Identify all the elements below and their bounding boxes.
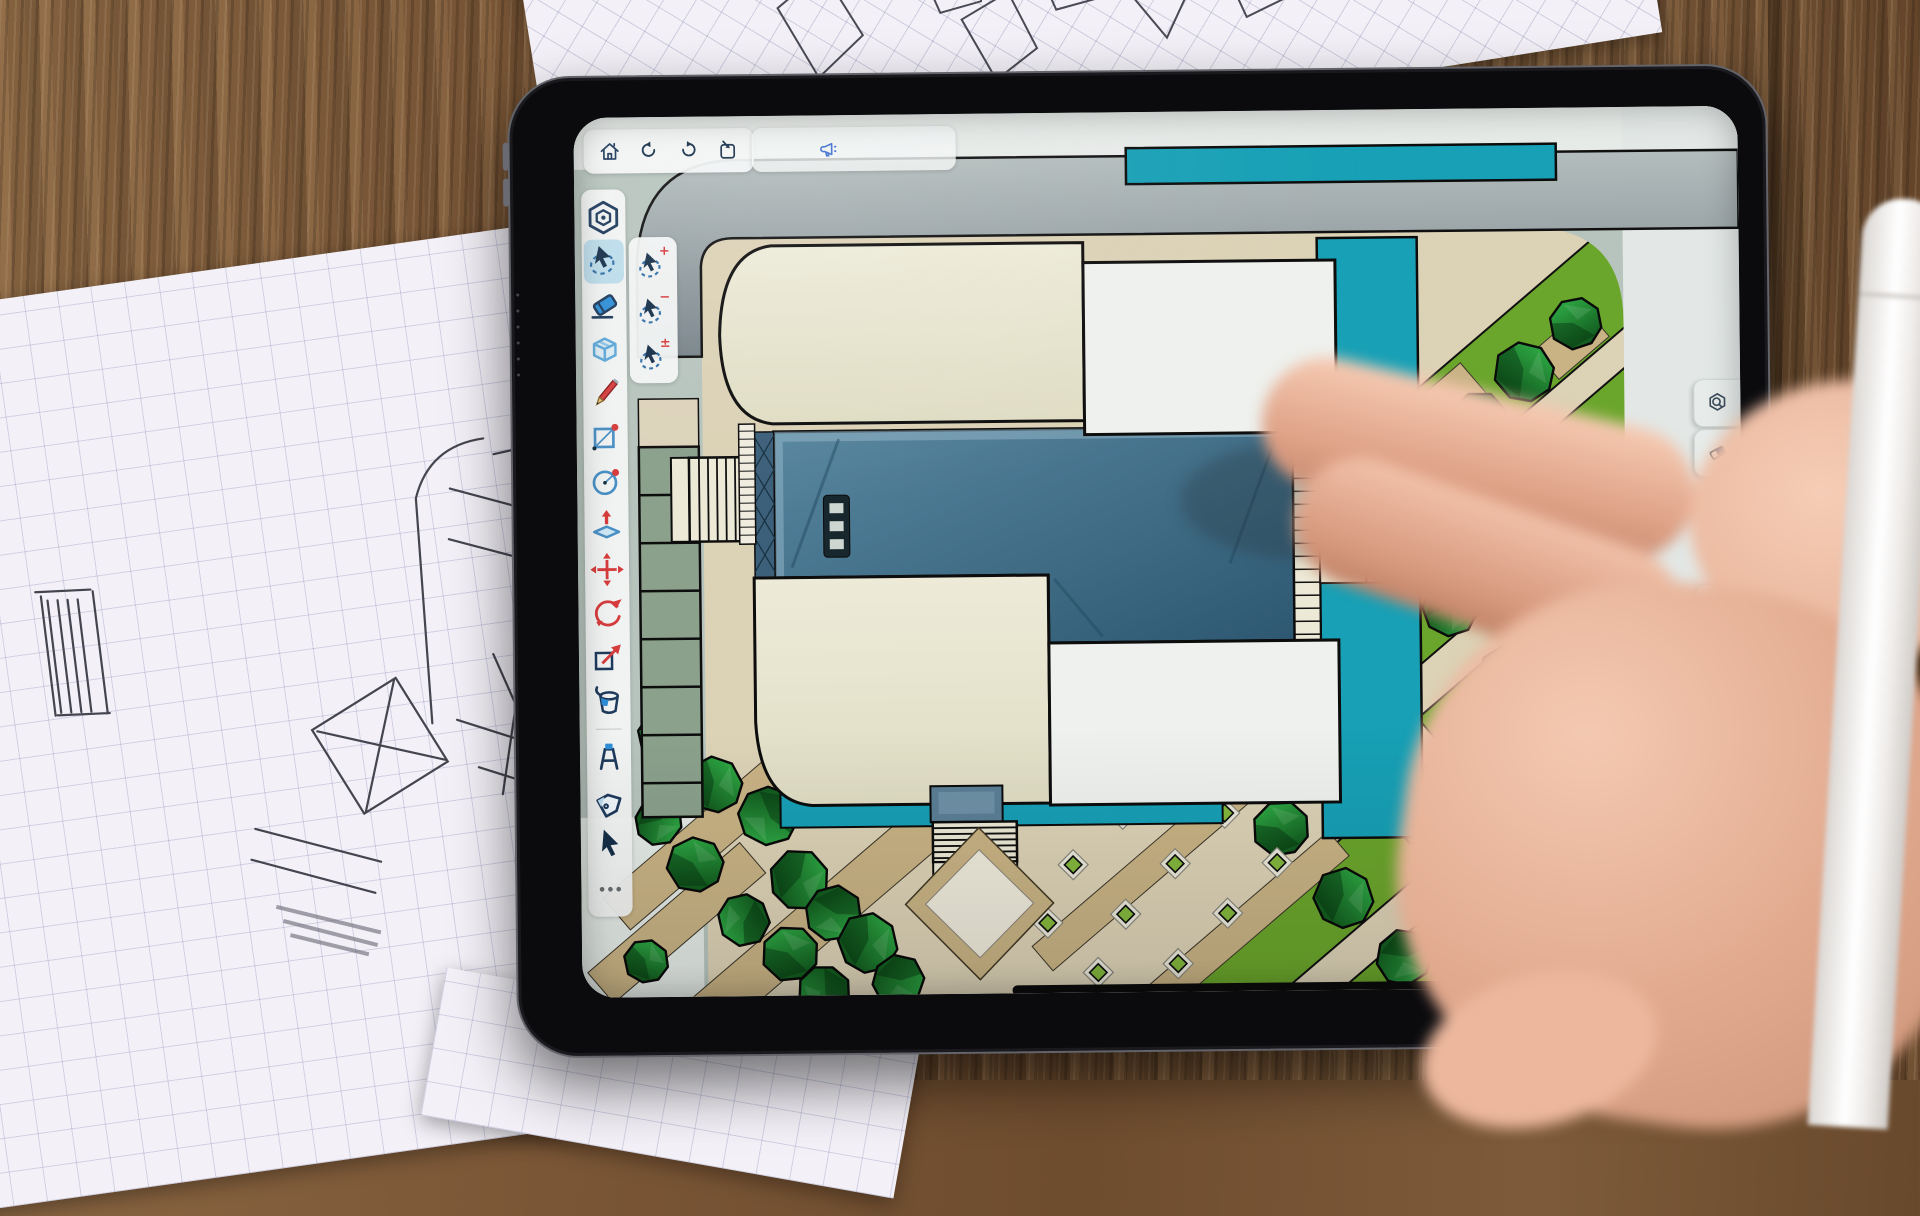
tool-push-pull[interactable] — [586, 503, 626, 547]
ellipsis-icon — [590, 868, 630, 908]
tool-rotate[interactable] — [587, 591, 627, 635]
tablet-screen: + − ± — [573, 106, 1746, 998]
move-icon — [587, 549, 627, 589]
select-toggle-button[interactable]: ± — [633, 333, 675, 379]
gear-icon — [1707, 645, 1733, 671]
select-subtract-badge: − — [659, 290, 670, 305]
stairs-west — [689, 457, 742, 542]
model-canvas[interactable] — [573, 106, 1746, 998]
redo-icon — [676, 139, 700, 163]
megaphone-icon — [817, 137, 841, 161]
hexagon-logo-icon — [583, 197, 623, 237]
display-circle-icon — [1706, 595, 1732, 621]
pool-top-strip — [1126, 144, 1556, 185]
stylus-pencil — [1808, 196, 1920, 1129]
tool-rectangle[interactable] — [585, 415, 625, 459]
tab-styles[interactable] — [1694, 429, 1742, 477]
eraser-icon — [584, 285, 624, 325]
components-cubes-icon — [1707, 695, 1733, 721]
tool-pencil[interactable] — [585, 371, 625, 415]
push-pull-icon — [586, 505, 626, 545]
select-add-button[interactable]: + — [632, 241, 674, 287]
paint-bucket-icon — [588, 681, 628, 721]
announce-toolbar — [751, 126, 955, 172]
announcements-button[interactable] — [814, 134, 844, 164]
styles-eraser-icon — [1705, 440, 1731, 466]
undo-button[interactable] — [634, 136, 664, 166]
top-toolbar — [583, 128, 753, 174]
tablet-device: + − ± — [507, 63, 1777, 1058]
select-add-badge: + — [659, 244, 670, 259]
tool-rail — [581, 189, 633, 916]
volume-up-button[interactable] — [503, 143, 509, 171]
tool-select[interactable] — [584, 239, 624, 283]
select-flyout: + − ± — [629, 237, 679, 383]
redo-button[interactable] — [673, 136, 703, 166]
tab-settings[interactable] — [1696, 634, 1744, 682]
tag-icon — [589, 780, 629, 820]
box-3d-icon — [585, 329, 625, 369]
select-lasso-icon — [584, 241, 624, 281]
tape-measure-icon — [589, 736, 629, 776]
home-icon — [597, 139, 621, 163]
hexagon-search-icon — [1704, 390, 1730, 416]
select-subtract-button[interactable]: − — [632, 287, 674, 333]
scale-icon — [588, 637, 628, 677]
tool-paint[interactable] — [588, 679, 628, 723]
building-cream-south — [754, 575, 1050, 806]
tool-box[interactable] — [585, 327, 625, 371]
tool-move[interactable] — [587, 547, 627, 591]
cursor-arrow-icon — [590, 824, 630, 864]
tool-eraser[interactable] — [584, 283, 624, 327]
tool-tape-measure[interactable] — [589, 734, 629, 778]
tool-tag[interactable] — [589, 778, 629, 822]
circle-tool-icon — [586, 461, 626, 501]
rail-divider — [596, 728, 622, 729]
tool-app-menu[interactable] — [583, 195, 623, 239]
tool-scale[interactable] — [588, 635, 628, 679]
select-toggle-badge: ± — [660, 336, 671, 351]
volume-down-button[interactable] — [503, 179, 509, 207]
export-button[interactable] — [713, 135, 743, 165]
undo-icon — [637, 139, 661, 163]
tab-components[interactable] — [1696, 684, 1744, 732]
building-white-south — [1049, 640, 1341, 805]
home-button[interactable] — [594, 136, 624, 166]
building-cream-north — [719, 243, 1085, 425]
export-icon — [716, 138, 740, 162]
pencil-icon — [585, 373, 625, 413]
building-white-north — [1083, 260, 1337, 435]
speaker-grille — [516, 294, 520, 377]
rotate-icon — [587, 593, 627, 633]
tool-more[interactable] — [590, 866, 630, 910]
tab-display[interactable] — [1695, 584, 1743, 632]
tab-inspect[interactable] — [1693, 379, 1741, 427]
tool-cursor[interactable] — [590, 822, 630, 866]
tool-circle[interactable] — [586, 459, 626, 503]
rectangle-tool-icon — [585, 417, 625, 457]
